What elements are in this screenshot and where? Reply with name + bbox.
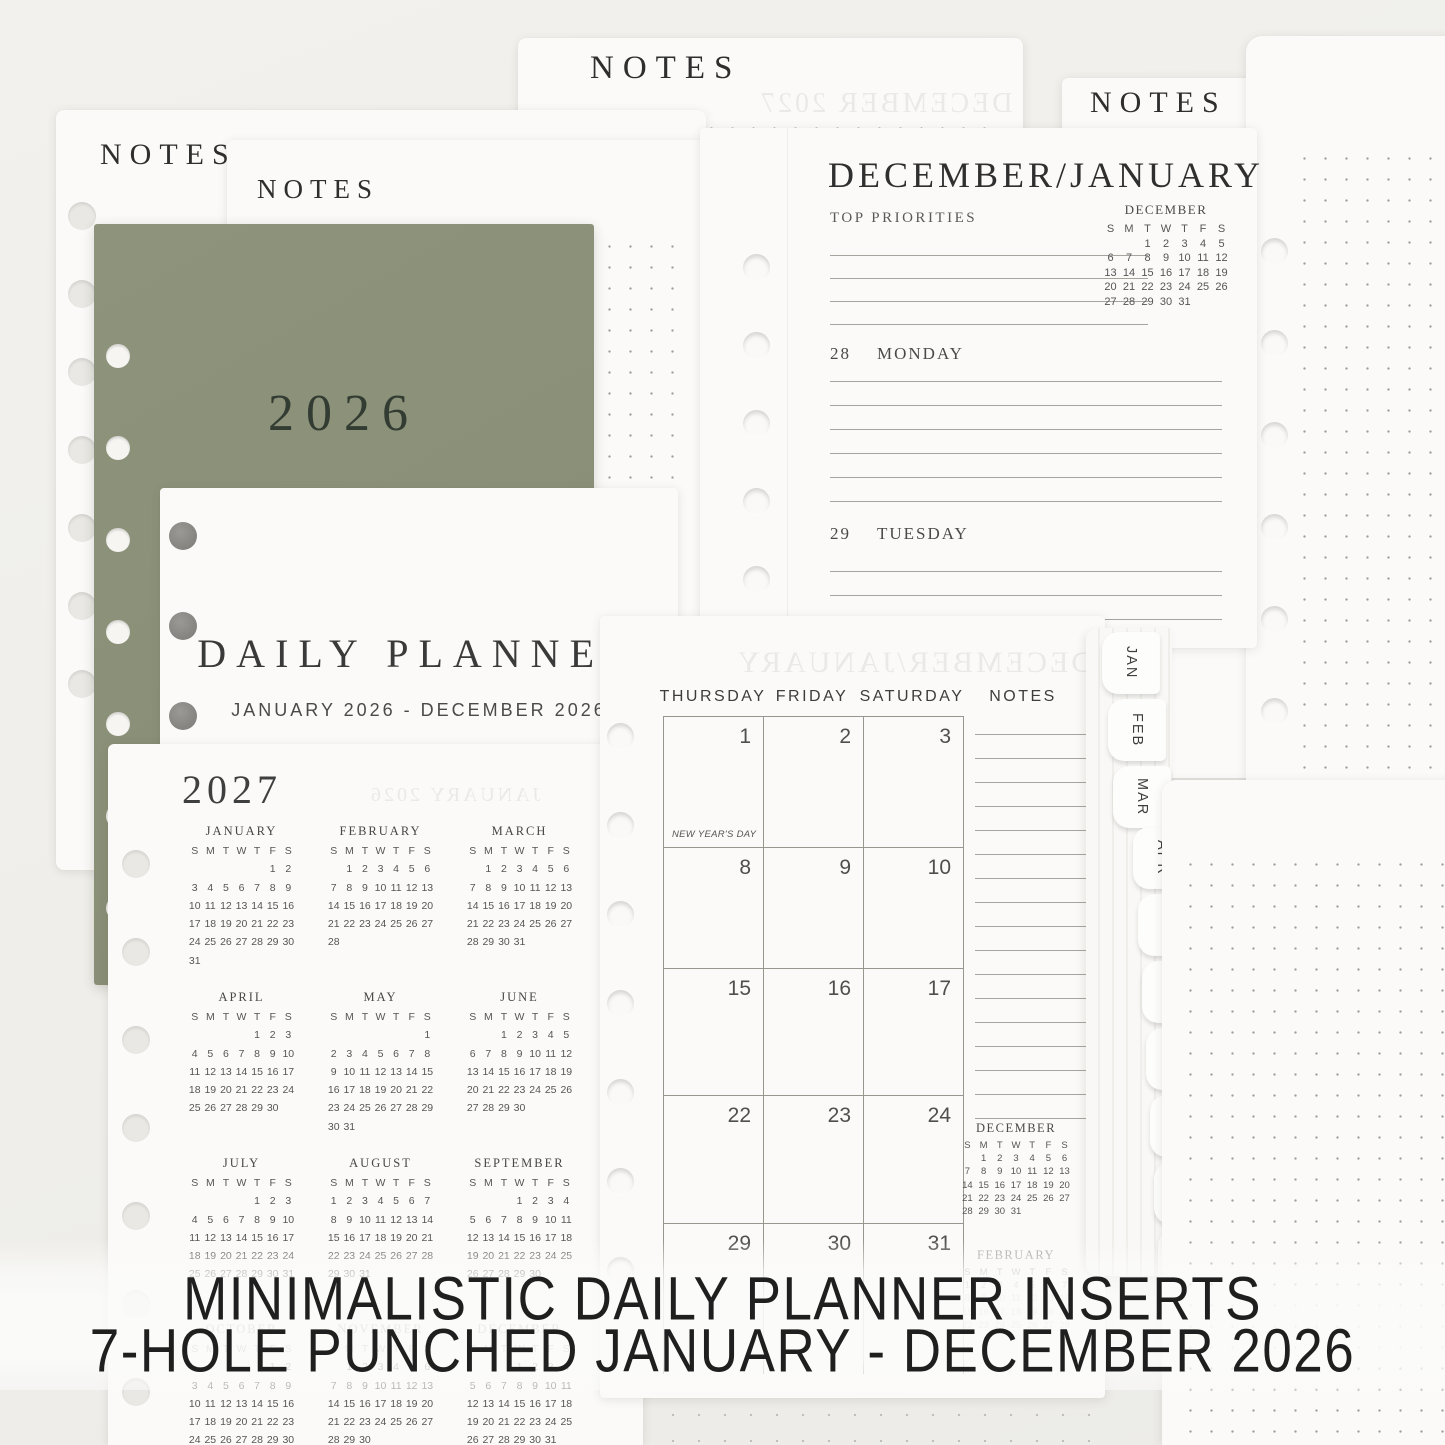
punch-hole [106, 620, 130, 644]
day-number: 9 [512, 1048, 528, 1066]
day-number: 13 [481, 1398, 497, 1416]
day-number: 18 [1024, 1180, 1040, 1193]
day-number: 28 [326, 1434, 342, 1445]
day-number: 7 [496, 1214, 512, 1232]
day-number: 5 [404, 863, 420, 881]
day-number: 25 [388, 1416, 404, 1434]
year-title: 2027 [182, 766, 282, 813]
day-number: 2 [1157, 238, 1176, 253]
date-number: 15 [728, 977, 751, 1001]
blank-cell [465, 1029, 481, 1047]
date-number: 1 [739, 725, 751, 749]
mini-month-title: AUGUST [311, 1156, 450, 1171]
day-number: 12 [465, 1398, 481, 1416]
punch-hole [169, 522, 197, 550]
day-number: 25 [203, 1434, 219, 1445]
day-number: 14 [326, 900, 342, 918]
day-number: 10 [357, 1214, 373, 1232]
day-number: 16 [512, 1066, 528, 1084]
weekday-letter: T [527, 1177, 543, 1195]
day-number: 21 [959, 1193, 975, 1206]
weekday-letter: M [1120, 223, 1139, 238]
weekday-letter: M [203, 1011, 219, 1029]
day-number: 11 [1024, 1166, 1040, 1179]
day-number: 29 [830, 524, 851, 543]
notes-heading: NOTES [1090, 86, 1227, 120]
punch-hole [607, 1079, 634, 1106]
day-number: 10 [543, 1214, 559, 1232]
blank-cell [342, 1029, 358, 1047]
weekday-letter: S [558, 1011, 574, 1029]
weekday-letter: T [496, 845, 512, 863]
day-number: 4 [203, 882, 219, 900]
day-number: 17 [187, 918, 203, 936]
day-number: 27 [419, 1416, 435, 1434]
punch-hole [106, 528, 130, 552]
day-number: 20 [218, 1084, 234, 1102]
punch-hole [169, 702, 197, 730]
day-number: 18 [187, 1084, 203, 1102]
day-number: 28 [496, 1434, 512, 1445]
dot-grid-strip [660, 1402, 1100, 1442]
day-number: 19 [218, 1416, 234, 1434]
day-number: 2 [342, 1195, 358, 1213]
ruled-line [975, 855, 1092, 879]
day-number: 26 [404, 1416, 420, 1434]
day-number: 30 [496, 936, 512, 954]
weekday-letter: F [265, 845, 281, 863]
day-number: 29 [265, 1434, 281, 1445]
weekday-letter: F [543, 1177, 559, 1195]
day-number: 3 [342, 1048, 358, 1066]
product-photo-canvas: NOTES DECEMBER 2027 NOTES NOTES NOTES 20… [0, 0, 1445, 1445]
ruled-line [975, 999, 1092, 1023]
day-number: 16 [280, 1398, 296, 1416]
day-number: 8 [976, 1166, 992, 1179]
day-number: 26 [218, 1434, 234, 1445]
day-number: 11 [357, 1066, 373, 1084]
ruled-line [830, 382, 1222, 406]
year-month-june: JUNESMTWTFS12345678910111213141516171819… [450, 990, 589, 1156]
day-number: 26 [543, 918, 559, 936]
blank-cell [234, 1029, 250, 1047]
weekday-letter: M [481, 1011, 497, 1029]
weekday-letter: S [280, 1011, 296, 1029]
weekday-letter: T [1175, 223, 1194, 238]
day-number: 26 [404, 918, 420, 936]
weekday-letter: M [481, 845, 497, 863]
calendar-cell: 1NEW YEAR'S DAY [664, 717, 764, 848]
day-number: 16 [496, 900, 512, 918]
day-number: 21 [234, 1084, 250, 1102]
day-number: 19 [218, 918, 234, 936]
day-number: 29 [1138, 296, 1157, 311]
mini-month-title: JANUARY [172, 824, 311, 839]
day-number: 6 [218, 1214, 234, 1232]
day-number: 3 [1008, 1153, 1024, 1166]
day-number: 23 [1157, 281, 1176, 296]
day-number: 5 [388, 1195, 404, 1213]
weekday-letter: S [558, 1177, 574, 1195]
day-number: 10 [187, 1398, 203, 1416]
weekday-letter: T [218, 845, 234, 863]
day-number: 4 [1194, 238, 1213, 253]
dot-grid-page-top-right [1246, 36, 1445, 784]
day-number: 6 [234, 882, 250, 900]
punch-hole [1261, 606, 1288, 633]
mini-month-title: DECEMBER [952, 1121, 1080, 1136]
day-number: 15 [265, 1398, 281, 1416]
year-month-february: FEBRUARYSMTWTFS1234567891011121314151617… [311, 824, 450, 990]
punch-hole [68, 280, 96, 308]
weekday-letter: T [218, 1011, 234, 1029]
day-number: 2 [992, 1153, 1008, 1166]
day-number: 1 [249, 1195, 265, 1213]
day-number: 27 [465, 1102, 481, 1120]
punch-hole [106, 344, 130, 368]
day-number: 10 [342, 1066, 358, 1084]
day-number: 25 [187, 1102, 203, 1120]
day-number: 9 [342, 1214, 358, 1232]
day-number: 16 [1157, 267, 1176, 282]
day-number: 6 [465, 1048, 481, 1066]
punch-hole [169, 612, 197, 640]
punch-hole [1261, 514, 1288, 541]
day-number: 26 [1040, 1193, 1056, 1206]
day-number: 24 [342, 1102, 358, 1120]
day-number: 1 [1138, 238, 1157, 253]
day-number: 14 [249, 1398, 265, 1416]
punch-hole [68, 202, 96, 230]
day-number: 27 [419, 918, 435, 936]
day-number: 26 [558, 1084, 574, 1102]
day-number: 13 [465, 1066, 481, 1084]
day-number: 31 [512, 936, 528, 954]
day-number: 29 [265, 936, 281, 954]
day-number: 7 [419, 1195, 435, 1213]
date-number: 17 [928, 977, 951, 1001]
day-number: 13 [388, 1066, 404, 1084]
day-number: 23 [265, 1084, 281, 1102]
blank-cell [234, 1195, 250, 1213]
day-number: 18 [527, 900, 543, 918]
day-number: 27 [481, 1434, 497, 1445]
calendar-cell: 23 [764, 1096, 864, 1224]
day-number: 25 [388, 918, 404, 936]
day-number: 19 [1212, 267, 1231, 282]
weekday-letter: W [373, 1177, 389, 1195]
weekday-letter: W [373, 845, 389, 863]
day-number: 1 [265, 863, 281, 881]
day-number: 4 [187, 1214, 203, 1232]
day-number: 21 [481, 1084, 497, 1102]
day-number: 22 [419, 1084, 435, 1102]
day-number: 7 [465, 882, 481, 900]
ruled-line [830, 358, 1222, 382]
day-number: 10 [512, 882, 528, 900]
weekday-letter: S [326, 1011, 342, 1029]
day-number: 11 [558, 1214, 574, 1232]
day-number: 30 [280, 936, 296, 954]
punch-hole [607, 723, 634, 750]
day-number: 24 [1175, 281, 1194, 296]
day-number: 9 [326, 1066, 342, 1084]
day-number: 1 [326, 1195, 342, 1213]
weekday-letter: M [481, 1177, 497, 1195]
weekday-letter: M [203, 1177, 219, 1195]
day-number: 15 [342, 900, 358, 918]
ruled-line [975, 831, 1092, 855]
day-number: 7 [234, 1048, 250, 1066]
day-number: 28 [465, 936, 481, 954]
ruled-line [975, 927, 1092, 951]
year-month-april: APRILSMTWTFS1234567891011121314151617181… [172, 990, 311, 1156]
day-number: 3 [280, 1029, 296, 1047]
day-number: 9 [265, 1214, 281, 1232]
day-number: 27 [388, 1102, 404, 1120]
weekday-letter: S [1101, 223, 1120, 238]
day-number: 16 [992, 1180, 1008, 1193]
mini-calendar-december: DECEMBERSMTWTFS1234567891011121314151617… [952, 1121, 1080, 1219]
day-number: 17 [342, 1084, 358, 1102]
ruled-line [830, 478, 1222, 502]
day-number: 6 [419, 863, 435, 881]
day-number: 1 [342, 863, 358, 881]
day-number: 8 [419, 1048, 435, 1066]
day-number: 1 [419, 1029, 435, 1047]
day-number: 13 [218, 1066, 234, 1084]
day-number: 8 [1138, 252, 1157, 267]
ruled-line [975, 711, 1092, 735]
punch-hole [122, 850, 150, 878]
weekday-letter: S [326, 845, 342, 863]
punch-hole [68, 436, 96, 464]
day-number: 15 [419, 1066, 435, 1084]
punch-hole [607, 990, 634, 1017]
weekday-letter: W [373, 1011, 389, 1029]
day-number: 11 [1194, 252, 1213, 267]
day-number: 10 [280, 1048, 296, 1066]
day-number: 25 [527, 918, 543, 936]
day-number: 24 [1008, 1193, 1024, 1206]
ruled-line [975, 1023, 1092, 1047]
day-number: 29 [481, 936, 497, 954]
weekday-letter: F [265, 1011, 281, 1029]
notes-heading: NOTES [257, 174, 379, 205]
day-number: 22 [249, 1084, 265, 1102]
day-number: 22 [1138, 281, 1157, 296]
day-number: 19 [404, 900, 420, 918]
blank-cell [481, 1195, 497, 1213]
day-number: 12 [558, 1048, 574, 1066]
punch-hole [743, 566, 770, 593]
day-number: 16 [527, 1398, 543, 1416]
day-number: 25 [543, 1084, 559, 1102]
notes-heading: NOTES [100, 138, 237, 172]
weekday-letter: W [512, 1177, 528, 1195]
day-number: 14 [496, 1398, 512, 1416]
ruled-line [975, 783, 1092, 807]
weekday-letter: W [234, 845, 250, 863]
ruled-line [975, 735, 1092, 759]
day-number: 15 [1138, 267, 1157, 282]
weekday-letter: W [1157, 223, 1176, 238]
day-number: 14 [326, 1398, 342, 1416]
ruled-line [975, 1071, 1092, 1095]
day-number: 15 [481, 900, 497, 918]
mini-month-grid: SMTWTFS123456789101112131415161718192021… [172, 1011, 311, 1121]
day-number: 12 [1212, 252, 1231, 267]
day-number: 12 [1040, 1166, 1056, 1179]
day-number: 19 [203, 1084, 219, 1102]
day-number: 14 [249, 900, 265, 918]
weekday-letter: F [404, 845, 420, 863]
day-number: 18 [543, 1066, 559, 1084]
calendar-cell: 22 [664, 1096, 764, 1224]
day-number: 20 [558, 900, 574, 918]
day-number: 25 [558, 1416, 574, 1434]
weekday-letter: S [280, 845, 296, 863]
blank-cell [481, 1029, 497, 1047]
day-number: 17 [373, 1398, 389, 1416]
weekday-letter: T [527, 1011, 543, 1029]
day-number: 12 [373, 1066, 389, 1084]
calendar-cell: 16 [764, 969, 864, 1096]
day-number: 4 [558, 1195, 574, 1213]
weekday-letter: F [543, 845, 559, 863]
weekday-letter: M [203, 845, 219, 863]
day-number: 29 [249, 1102, 265, 1120]
mini-month-grid: SMTWTFS123456789101112131415161718192021… [311, 1011, 450, 1139]
weekday-letter: S [187, 845, 203, 863]
dot-grid [1294, 148, 1445, 776]
day-number: 11 [388, 882, 404, 900]
day-number: 10 [527, 1048, 543, 1066]
calendar-cell: 3 [864, 717, 964, 848]
punch-hole [122, 1114, 150, 1142]
day-number: 26 [373, 1102, 389, 1120]
day-number: 8 [265, 882, 281, 900]
mini-month-title: SEPTEMBER [450, 1156, 589, 1171]
day-number: 24 [187, 1434, 203, 1445]
ruled-line [975, 879, 1092, 903]
day-number: 20 [419, 1398, 435, 1416]
punch-holes [68, 202, 96, 698]
day-number: 4 [388, 863, 404, 881]
day-number: 17 [512, 900, 528, 918]
day-number: 22 [496, 1084, 512, 1102]
day-number: 26 [218, 936, 234, 954]
day-number: 14 [234, 1066, 250, 1084]
day-number: 6 [481, 1214, 497, 1232]
day-number: 15 [496, 1066, 512, 1084]
day-number: 21 [326, 918, 342, 936]
day-number: 11 [187, 1066, 203, 1084]
date-number: 23 [828, 1104, 851, 1128]
day-number: 19 [373, 1084, 389, 1102]
day-number: 30 [1157, 296, 1176, 311]
column-header-thursday: THURSDAY [658, 688, 768, 706]
day-number: 31 [1175, 296, 1194, 311]
blank-cell [187, 863, 203, 881]
day-number: 23 [357, 918, 373, 936]
blank-cell [187, 1195, 203, 1213]
ruled-line [830, 454, 1222, 478]
weekday-letter: T [992, 1140, 1008, 1153]
blank-cell [187, 1029, 203, 1047]
day-number: 28 [959, 1206, 975, 1219]
blank-cell [203, 863, 219, 881]
weekday-letter: F [404, 1177, 420, 1195]
day-number: 27 [234, 1434, 250, 1445]
priorities-label: TOP PRIORITIES [830, 210, 977, 227]
day-number: 11 [543, 1048, 559, 1066]
day-number: 28 [249, 936, 265, 954]
punch-hole [1261, 422, 1288, 449]
weekday-letter: W [234, 1011, 250, 1029]
day-number: 22 [512, 1416, 528, 1434]
day-number: 15 [976, 1180, 992, 1193]
weekday-letter: W [234, 1177, 250, 1195]
weekday-letter: T [527, 845, 543, 863]
weekday-letter: S [419, 1011, 435, 1029]
punch-hole [607, 1168, 634, 1195]
weekday-letter: S [959, 1140, 975, 1153]
day-number: 7 [249, 882, 265, 900]
ruled-line [830, 548, 1222, 572]
day-number: 14 [419, 1214, 435, 1232]
calendar-cell: 10 [864, 848, 964, 969]
day-number: 2 [326, 1048, 342, 1066]
mini-month-title: MAY [311, 990, 450, 1005]
ruled-line [975, 951, 1092, 975]
day-number: 20 [234, 1416, 250, 1434]
date-number: 16 [828, 977, 851, 1001]
ruled-line [830, 406, 1222, 430]
punch-hole [68, 358, 96, 386]
banner-line-2: 7-HOLE PUNCHED JANUARY - DECEMBER 2026 [0, 1322, 1445, 1382]
day-number: 19 [404, 1398, 420, 1416]
day-number: 5 [543, 863, 559, 881]
weekday-letter: S [419, 1177, 435, 1195]
day-number: 25 [357, 1102, 373, 1120]
day-number: 3 [373, 863, 389, 881]
blank-cell [1120, 238, 1139, 253]
day-number: 10 [1008, 1166, 1024, 1179]
day-number: 24 [512, 918, 528, 936]
day-number: 8 [342, 882, 358, 900]
showthrough-text: DECEMBER/JANUARY [735, 646, 1093, 680]
day-number: 3 [527, 1029, 543, 1047]
punch-holes [607, 723, 634, 1284]
day-number: 27 [218, 1102, 234, 1120]
day-number: 2 [496, 863, 512, 881]
day-number: 14 [404, 1066, 420, 1084]
ruled-line [830, 430, 1222, 454]
day-number: 11 [373, 1214, 389, 1232]
day-number: 6 [218, 1048, 234, 1066]
blank-cell [326, 1029, 342, 1047]
day-number: 20 [388, 1084, 404, 1102]
day-number: 10 [373, 882, 389, 900]
cover-year: 2026 [94, 384, 594, 443]
notes-heading: NOTES [590, 50, 741, 87]
weekday-letter: T [357, 1177, 373, 1195]
ruled-line [975, 1047, 1092, 1071]
day-number: 18 [203, 1416, 219, 1434]
mini-month-title: MARCH [450, 824, 589, 839]
mini-month-grid: SMTWTFS123456789101112131415161718192021… [450, 845, 589, 955]
